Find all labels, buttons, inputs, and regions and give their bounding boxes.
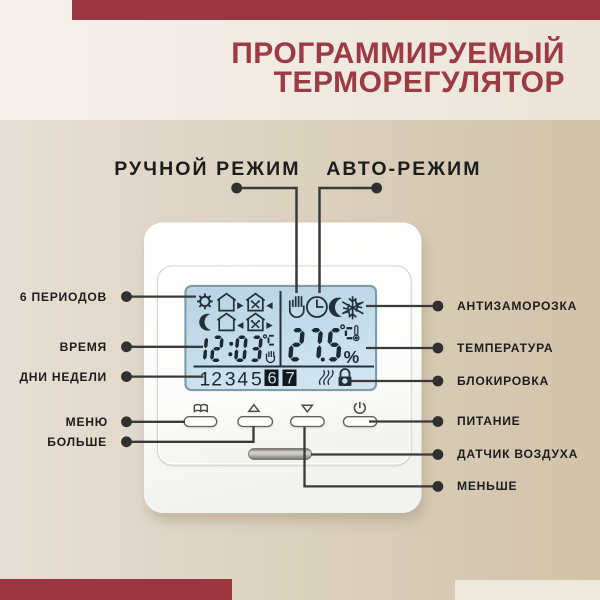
svg-text:7: 7 — [286, 370, 295, 388]
svg-text:%: % — [344, 347, 360, 367]
svg-text:4: 4 — [237, 369, 248, 391]
svg-text:5: 5 — [251, 369, 262, 391]
svg-text:3: 3 — [225, 369, 236, 391]
svg-text:2: 2 — [211, 369, 222, 391]
svg-text:1: 1 — [200, 369, 211, 391]
svg-text:6: 6 — [268, 370, 277, 388]
